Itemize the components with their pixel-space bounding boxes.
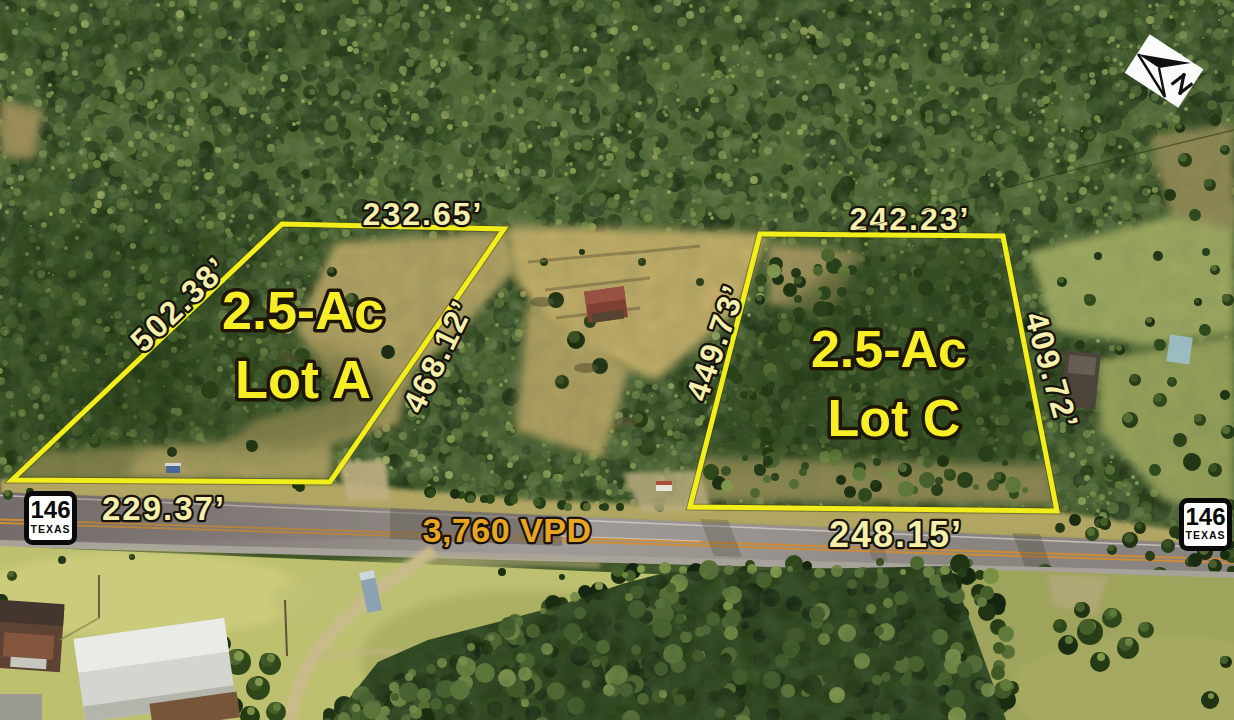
- svg-text:Lot C: Lot C: [828, 389, 961, 447]
- svg-text:2.5-Ac: 2.5-Ac: [811, 320, 967, 378]
- svg-text:229.37’: 229.37’: [102, 490, 226, 527]
- svg-text:TEXAS: TEXAS: [30, 523, 70, 535]
- svg-text:248.15’: 248.15’: [829, 514, 963, 555]
- svg-text:232.65’: 232.65’: [363, 196, 484, 232]
- svg-text:TEXAS: TEXAS: [1185, 529, 1225, 541]
- svg-text:Lot A: Lot A: [235, 349, 371, 409]
- svg-text:242.23’: 242.23’: [850, 201, 971, 237]
- svg-text:3,760 VPD: 3,760 VPD: [423, 511, 592, 549]
- svg-text:2.5-Ac: 2.5-Ac: [222, 280, 384, 340]
- svg-text:146: 146: [30, 496, 70, 523]
- svg-text:146: 146: [1185, 503, 1225, 530]
